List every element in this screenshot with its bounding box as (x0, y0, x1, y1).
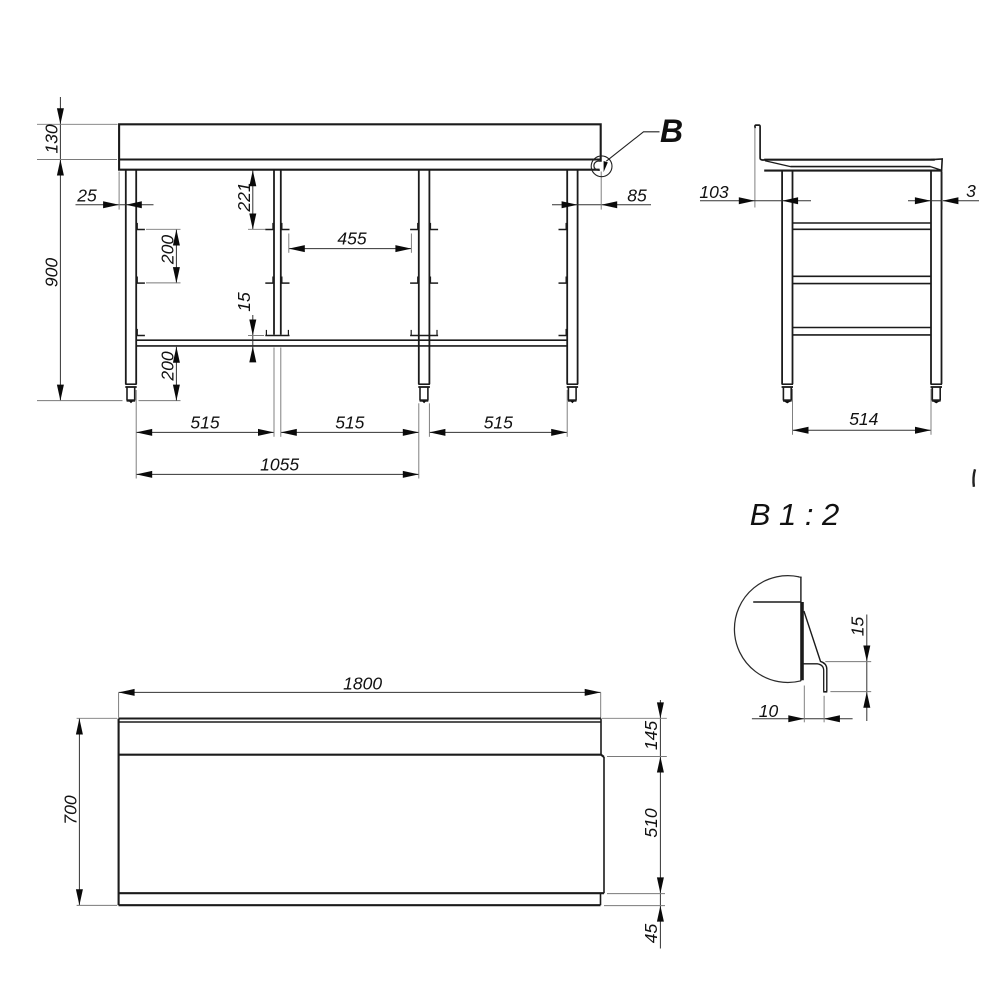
svg-text:B: B (660, 113, 683, 149)
svg-text:200: 200 (157, 351, 177, 381)
svg-text:900: 900 (41, 258, 61, 287)
svg-text:514: 514 (849, 409, 878, 429)
svg-text:10: 10 (759, 701, 779, 721)
svg-text:B 1 : 2: B 1 : 2 (750, 497, 840, 532)
svg-text:85: 85 (627, 185, 647, 205)
svg-text:515: 515 (484, 413, 513, 433)
svg-text:1055: 1055 (260, 454, 299, 474)
svg-text:510: 510 (641, 808, 661, 837)
svg-text:45: 45 (641, 924, 661, 944)
svg-text:221: 221 (234, 182, 254, 212)
svg-text:15: 15 (847, 617, 867, 637)
svg-text:3: 3 (966, 181, 976, 201)
svg-text:15: 15 (234, 292, 254, 312)
svg-text:515: 515 (335, 413, 364, 433)
svg-text:103: 103 (699, 182, 728, 202)
svg-text:700: 700 (60, 795, 80, 824)
svg-text:1800: 1800 (343, 673, 382, 693)
svg-text:130: 130 (41, 124, 61, 153)
svg-text:145: 145 (641, 721, 661, 750)
svg-text:515: 515 (190, 413, 219, 433)
svg-text:455: 455 (337, 228, 366, 248)
svg-text:200: 200 (157, 235, 177, 265)
svg-text:25: 25 (76, 185, 97, 205)
